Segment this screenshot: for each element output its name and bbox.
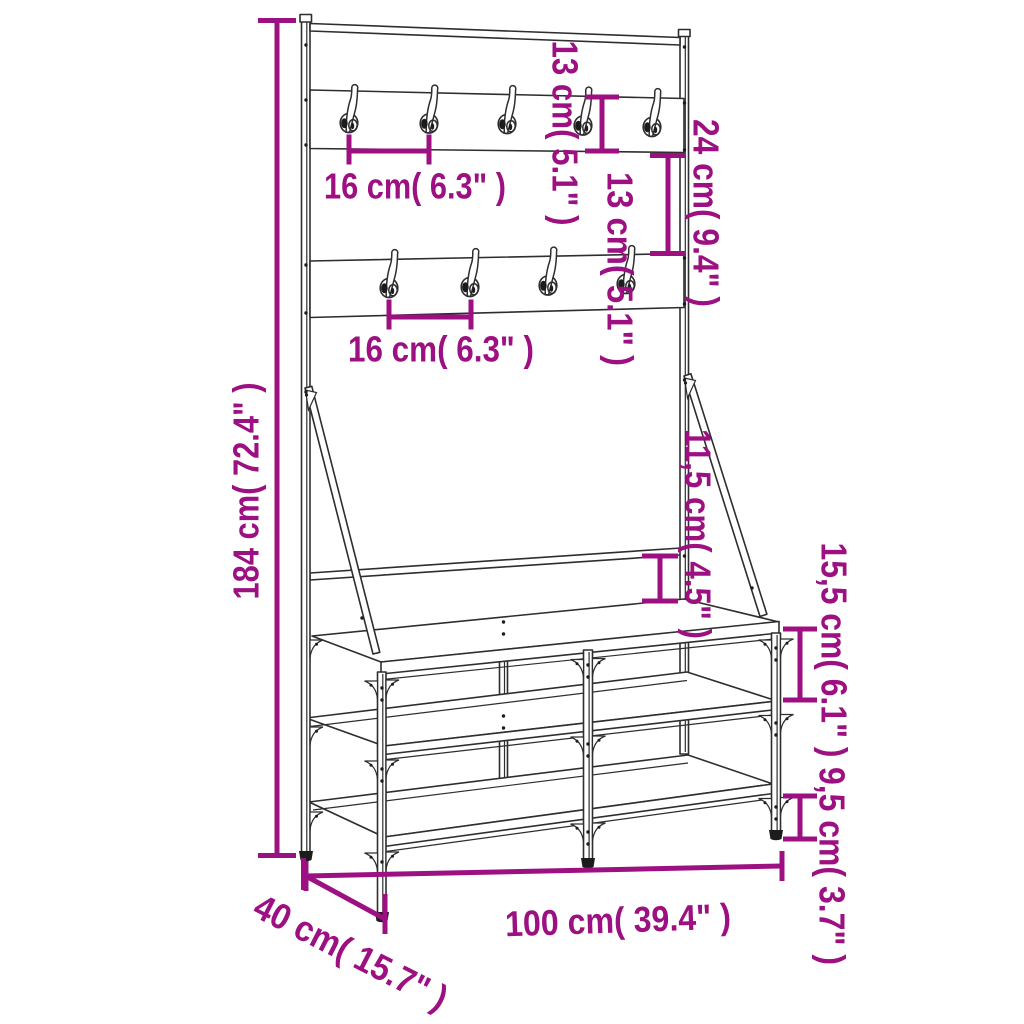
svg-text:9,5 cm( 3.7" ): 9,5 cm( 3.7" ): [812, 767, 853, 965]
svg-text:15,5 cm( 6.1" ): 15,5 cm( 6.1" ): [814, 543, 855, 758]
svg-text:16 cm( 6.3" ): 16 cm( 6.3" ): [324, 166, 506, 207]
svg-text:13 cm( 5.1" ): 13 cm( 5.1" ): [545, 41, 586, 226]
svg-text:100 cm( 39.4" ): 100 cm( 39.4" ): [504, 896, 731, 945]
svg-text:16 cm( 6.3" ): 16 cm( 6.3" ): [348, 329, 534, 370]
svg-text:184 cm( 72.4" ): 184 cm( 72.4" ): [226, 383, 267, 600]
svg-text:13 cm( 5.1" ): 13 cm( 5.1" ): [600, 172, 641, 366]
svg-text:11,5 cm( 4.5" ): 11,5 cm( 4.5" ): [678, 429, 719, 639]
svg-text:24 cm( 9.4" ): 24 cm( 9.4" ): [686, 119, 727, 307]
